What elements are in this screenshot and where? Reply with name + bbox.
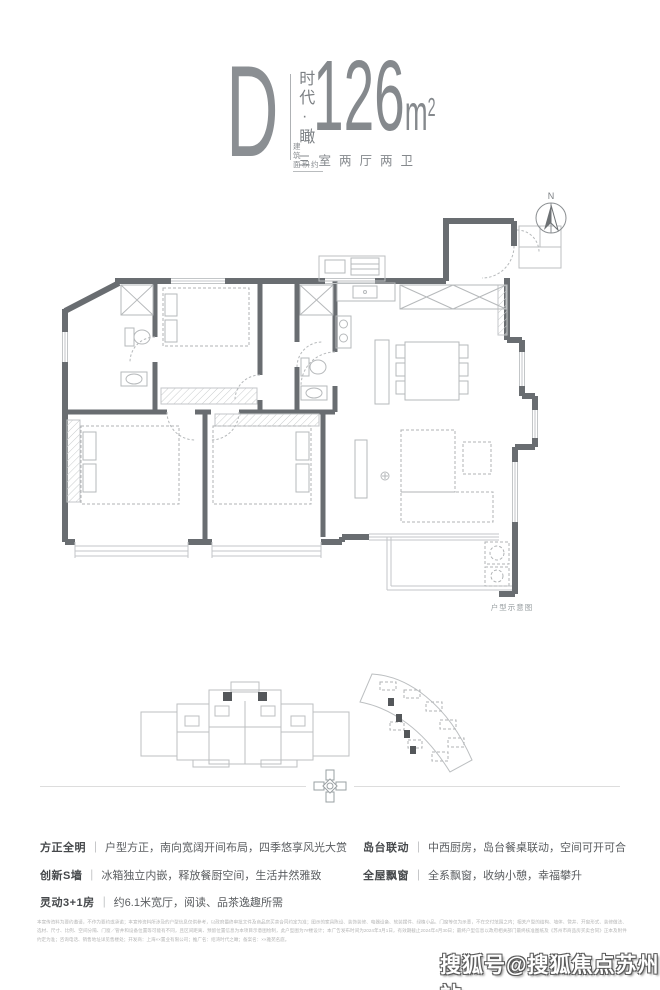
feature-title: 创新S墙 (40, 870, 82, 882)
core-marker (223, 692, 232, 701)
washer-icon (485, 542, 509, 586)
header-divider (290, 74, 291, 160)
divider-line (40, 786, 306, 787)
bedroom-2-bed (213, 426, 311, 504)
feature-desc: 全系飘窗，收纳小憩，幸福攀升 (428, 870, 582, 882)
living-room (355, 430, 493, 522)
feature-desc: 户型方正，南向宽阔开间布局，四季悠享风光大赏 (105, 842, 347, 854)
feature-separator: ｜ (86, 870, 97, 882)
building-footprint-diagram (135, 672, 355, 772)
feature-title: 岛台联动 (363, 842, 409, 854)
balcony (387, 537, 512, 590)
core-marker (258, 692, 267, 701)
series-name: 时代·瞰 (295, 70, 314, 147)
kitchen (336, 283, 395, 348)
feature-separator: ｜ (413, 842, 424, 854)
wardrobes (67, 285, 507, 502)
feature-separator: ｜ (413, 870, 424, 882)
bedroom-1-bed (81, 426, 179, 504)
bathroom-1 (121, 285, 153, 386)
area-unit: m (405, 85, 428, 141)
feature-item: 全屋飘窗｜全系飘窗，收纳小憩，幸福攀升 (363, 867, 626, 883)
ac-platform (319, 256, 385, 281)
interior-walls (65, 281, 335, 542)
feature-item: 创新S墙｜冰箱独立内嵌，释放餐厨空间，生活井然雅致 (40, 867, 347, 883)
area-digits: 126 (313, 40, 405, 152)
watermark: 搜狐号@搜狐焦点苏州站 (440, 949, 660, 990)
feature-title: 灵动3+1房 (40, 897, 95, 909)
feature-item: 灵动3+1房｜约6.1米宽厅，阅读、品茶逸趣所需 (40, 894, 347, 910)
island-counter (375, 340, 389, 404)
bedroom-3-bed (163, 288, 249, 346)
plan-type-letter: D (226, 46, 279, 176)
feature-desc: 中西厨房，岛台餐桌联动，空间可开可合 (428, 842, 626, 854)
highlighted-buildings (388, 698, 416, 754)
divider-line (354, 786, 620, 787)
site-plan-diagram (352, 668, 484, 776)
feature-title: 方正全明 (40, 842, 86, 854)
feature-separator: ｜ (99, 897, 110, 909)
feature-item: 岛台联动｜中西厨房，岛台餐桌联动，空间可开可合 (363, 839, 626, 855)
feature-list-right: 岛台联动｜中西厨房，岛台餐桌联动，空间可开可合 全屋飘窗｜全系飘窗，收纳小憩，幸… (363, 839, 626, 894)
area-value: 126m2 (313, 46, 436, 146)
rooms-summary: 三室两厅两卫 (298, 150, 421, 169)
feature-desc: 约6.1米宽厅，阅读、品茶逸趣所需 (114, 897, 283, 909)
feature-item: 方正全明｜户型方正，南向宽阔开间布局，四季悠享风光大赏 (40, 839, 347, 855)
feature-list-left: 方正全明｜户型方正，南向宽阔开间布局，四季悠享风光大赏 创新S墙｜冰箱独立内嵌，… (40, 839, 347, 922)
compass-north-label: N (548, 191, 555, 201)
feature-separator: ｜ (90, 842, 101, 854)
plan-caption: 户型示意图 (491, 602, 534, 612)
outer-walls (65, 221, 535, 594)
feature-desc: 冰箱独立内嵌，释放餐厨空间，生活井然雅致 (101, 870, 321, 882)
storage-cabinet (400, 285, 506, 309)
floorplan-ad-page: D 时代·瞰 建筑 面积约 126m2 三室两厅两卫 (0, 0, 660, 990)
legal-disclaimer: 本宣传资料为要约邀请，不作为要约或承诺；本宣传资料所涉及的户型信息仅供参考，以政… (37, 919, 627, 945)
dining-table (396, 342, 468, 400)
area-unit-exponent: 2 (428, 92, 436, 122)
feature-title: 全屋飘窗 (363, 870, 409, 882)
ornament-cross-icon (310, 766, 350, 806)
floor-plan-drawing: N 户型示意图 (55, 190, 575, 630)
